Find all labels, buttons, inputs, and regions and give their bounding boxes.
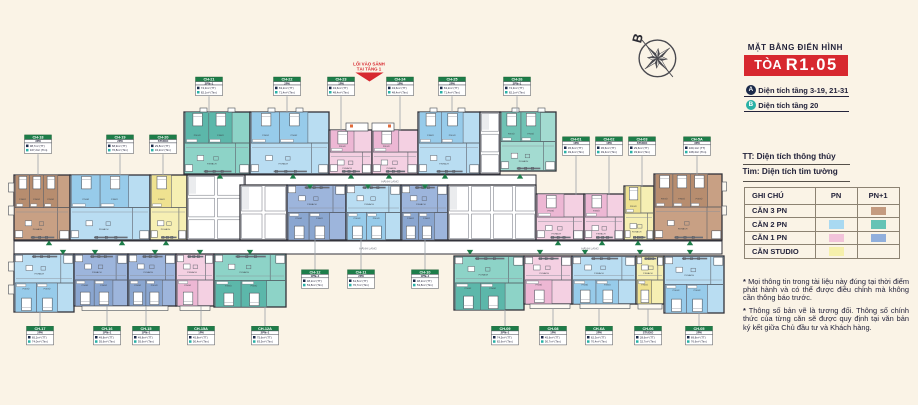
svg-text:P.NGỦ: P.NGỦ	[44, 288, 51, 291]
svg-text:3PN: 3PN	[694, 141, 699, 145]
svg-text:49,4m² (Tim): 49,4m² (Tim)	[568, 150, 584, 154]
svg-text:STUDIO: STUDIO	[643, 331, 654, 335]
svg-text:P.KHÁCH: P.KHÁCH	[207, 163, 217, 166]
svg-text:2PN: 2PN	[449, 81, 454, 85]
svg-text:2PN+1: 2PN+1	[501, 331, 510, 335]
svg-text:P.KHÁCH: P.KHÁCH	[342, 167, 352, 170]
svg-text:82,6m² (Tim): 82,6m² (Tim)	[497, 340, 513, 344]
svg-text:1PN+1: 1PN+1	[103, 331, 112, 335]
svg-text:P.NGỦ: P.NGỦ	[678, 197, 685, 200]
svg-text:P.NGỦ: P.NGỦ	[316, 217, 323, 220]
svg-text:P.NGỦ: P.NGỦ	[291, 134, 298, 137]
svg-text:50,4m² (Tim): 50,4m² (Tim)	[193, 340, 209, 344]
svg-text:P.KHÁCH: P.KHÁCH	[239, 271, 249, 274]
svg-text:P.NGỦ: P.NGỦ	[535, 284, 542, 287]
svg-text:74,0m² (Tim): 74,0m² (Tim)	[32, 340, 48, 344]
svg-text:P.NGỦ: P.NGỦ	[354, 217, 361, 220]
svg-text:P.NGỦ: P.NGỦ	[151, 284, 158, 287]
svg-text:P.NGỦ: P.NGỦ	[23, 288, 30, 291]
svg-text:71,4m² (Tim): 71,4m² (Tim)	[279, 90, 295, 94]
svg-text:P.NGỦ: P.NGỦ	[158, 198, 165, 201]
svg-text:2PN: 2PN	[37, 331, 42, 335]
svg-text:HÀNH LANG: HÀNH LANG	[381, 179, 399, 183]
svg-text:P.NGỦ: P.NGỦ	[251, 285, 258, 288]
svg-text:2PN+1: 2PN+1	[261, 331, 270, 335]
svg-text:1PN+1: 1PN+1	[142, 331, 151, 335]
svg-text:P.NGỦ: P.NGỦ	[295, 217, 302, 220]
svg-text:P.KHÁCH: P.KHÁCH	[364, 203, 374, 206]
svg-text:70,4m² (Tim): 70,4m² (Tim)	[591, 340, 607, 344]
svg-text:P.NGỦ: P.NGỦ	[373, 217, 380, 220]
svg-text:P.NGỦ: P.NGỦ	[489, 287, 496, 290]
svg-text:1PN: 1PN	[198, 331, 203, 335]
svg-text:P.NGỦ: P.NGỦ	[339, 145, 346, 148]
svg-text:P.NGỦ: P.NGỦ	[508, 133, 515, 136]
svg-text:P.NGỦ: P.NGỦ	[604, 284, 611, 287]
svg-text:P.KHÁCH: P.KHÁCH	[439, 163, 449, 166]
svg-text:P.NGỦ: P.NGỦ	[100, 284, 107, 287]
svg-text:P.NGỦ: P.NGỦ	[465, 287, 472, 290]
svg-text:1PN: 1PN	[397, 81, 402, 85]
svg-text:P.NGỦ: P.NGỦ	[593, 210, 600, 213]
svg-text:P.NGỦ: P.NGỦ	[19, 198, 26, 201]
svg-text:2PN: 2PN	[117, 139, 122, 143]
svg-text:STUDIO: STUDIO	[637, 141, 648, 145]
svg-text:P.NGỦ: P.NGỦ	[111, 198, 118, 201]
svg-text:P.KHÁCH: P.KHÁCH	[34, 273, 44, 276]
svg-text:49,4m² (Tim): 49,4m² (Tim)	[601, 150, 617, 154]
svg-text:HÀNH LANG: HÀNH LANG	[359, 246, 377, 250]
svg-text:P.KHÁCH: P.KHÁCH	[416, 203, 426, 206]
svg-text:P.KHÁCH: P.KHÁCH	[187, 271, 197, 274]
svg-text:P.NGỦ: P.NGỦ	[449, 134, 456, 137]
svg-text:P.KHÁCH: P.KHÁCH	[643, 272, 653, 275]
svg-text:TẠI TẦNG 1: TẠI TẦNG 1	[357, 67, 382, 72]
svg-text:P.KHÁCH: P.KHÁCH	[596, 233, 606, 236]
svg-text:P.KHÁCH: P.KHÁCH	[594, 272, 604, 275]
svg-text:33,9m² (Tim): 33,9m² (Tim)	[634, 150, 650, 154]
svg-text:P.NGỦ: P.NGỦ	[194, 134, 201, 137]
svg-text:P.KHÁCH: P.KHÁCH	[539, 272, 549, 275]
svg-text:1PN: 1PN	[550, 331, 555, 335]
svg-text:P.KHÁCH: P.KHÁCH	[143, 271, 153, 274]
svg-text:2PN: 2PN	[596, 331, 601, 335]
svg-text:P.NGỦ: P.NGỦ	[262, 134, 269, 137]
svg-text:P.NGỦ: P.NGỦ	[661, 197, 668, 200]
svg-text:2PN+1: 2PN+1	[513, 81, 522, 85]
svg-text:P.NGỦ: P.NGỦ	[82, 284, 89, 287]
svg-text:71,4m² (Tim): 71,4m² (Tim)	[444, 90, 460, 94]
svg-text:3PN: 3PN	[35, 139, 40, 143]
svg-text:P.KHÁCH: P.KHÁCH	[519, 160, 529, 163]
svg-text:P.NGỦ: P.NGỦ	[423, 217, 430, 220]
svg-text:STUDIO: STUDIO	[158, 139, 169, 143]
svg-text:2PN: 2PN	[358, 274, 363, 278]
svg-text:P.KHÁCH: P.KHÁCH	[479, 274, 489, 277]
svg-text:48,4m² (Tim): 48,4m² (Tim)	[392, 90, 408, 94]
svg-text:34,2m² (Tim): 34,2m² (Tim)	[155, 148, 171, 152]
svg-text:P.KHÁCH: P.KHÁCH	[684, 274, 694, 277]
svg-text:P.NGỦ: P.NGỦ	[696, 197, 703, 200]
svg-text:P.NGỦ: P.NGỦ	[47, 198, 54, 201]
svg-text:1PN+1: 1PN+1	[421, 274, 430, 278]
svg-text:1PN: 1PN	[606, 141, 611, 145]
svg-text:2PN: 2PN	[696, 331, 701, 335]
svg-text:P.KHÁCH: P.KHÁCH	[161, 228, 171, 231]
svg-text:P.KHÁCH: P.KHÁCH	[99, 228, 109, 231]
svg-text:55,6m² (Tim): 55,6m² (Tim)	[99, 340, 115, 344]
svg-text:82,1m² (Tim): 82,1m² (Tim)	[509, 90, 525, 94]
svg-text:P.NGỦ: P.NGỦ	[407, 217, 414, 220]
svg-text:P.NGỦ: P.NGỦ	[547, 210, 554, 213]
svg-text:P.NGỦ: P.NGỦ	[630, 205, 637, 208]
svg-text:55,6m² (Tim): 55,6m² (Tim)	[138, 340, 154, 344]
svg-text:P.NGỦ: P.NGỦ	[581, 284, 588, 287]
svg-text:108,4m² (Tim): 108,4m² (Tim)	[689, 150, 707, 154]
svg-text:P.NGỦ: P.NGỦ	[673, 289, 680, 292]
svg-text:P.KHÁCH: P.KHÁCH	[278, 163, 288, 166]
svg-text:83,5m² (Tim): 83,5m² (Tim)	[257, 340, 273, 344]
svg-text:P.KHÁCH: P.KHÁCH	[92, 271, 102, 274]
svg-text:P.NGỦ: P.NGỦ	[383, 145, 390, 148]
svg-text:P.NGỦ: P.NGỦ	[33, 198, 40, 201]
svg-text:P.NGỦ: P.NGỦ	[134, 284, 141, 287]
svg-text:P.NGỦ: P.NGỦ	[427, 134, 434, 137]
svg-text:P.NGỦ: P.NGỦ	[184, 284, 191, 287]
svg-text:P.KHÁCH: P.KHÁCH	[678, 228, 688, 231]
svg-text:P.KHÁCH: P.KHÁCH	[632, 231, 642, 234]
svg-text:P.NGỦ: P.NGỦ	[641, 284, 648, 287]
svg-text:2PN: 2PN	[284, 81, 289, 85]
svg-text:76,8m² (Tim): 76,8m² (Tim)	[112, 148, 128, 152]
svg-text:50,7m² (Tim): 50,7m² (Tim)	[545, 340, 561, 344]
svg-text:P.NGỦ: P.NGỦ	[527, 133, 534, 136]
svg-text:P.KHÁCH: P.KHÁCH	[33, 228, 43, 231]
svg-text:70,7m² (Tim): 70,7m² (Tim)	[353, 283, 369, 287]
svg-text:P.KHÁCH: P.KHÁCH	[551, 233, 561, 236]
svg-text:P.KHÁCH: P.KHÁCH	[307, 203, 317, 206]
svg-text:48,4m² (Tim): 48,4m² (Tim)	[333, 90, 349, 94]
svg-text:P.NGỦ: P.NGỦ	[82, 198, 89, 201]
svg-text:1PN: 1PN	[573, 141, 578, 145]
svg-text:53,8m² (Tim): 53,8m² (Tim)	[307, 283, 323, 287]
svg-text:P.NGỦ: P.NGỦ	[217, 134, 224, 137]
svg-text:2PN+1: 2PN+1	[205, 81, 214, 85]
svg-text:P.KHÁCH: P.KHÁCH	[387, 167, 397, 170]
svg-text:HÀNH LANG: HÀNH LANG	[581, 246, 599, 250]
svg-text:53,8m² (Tim): 53,8m² (Tim)	[417, 283, 433, 287]
svg-text:P.NGỦ: P.NGỦ	[694, 289, 701, 292]
svg-text:1PN: 1PN	[338, 81, 343, 85]
svg-text:76,6m² (Tim): 76,6m² (Tim)	[691, 340, 707, 344]
svg-text:107,2m² (Tim): 107,2m² (Tim)	[30, 148, 48, 152]
svg-text:P.NGỦ: P.NGỦ	[225, 285, 232, 288]
svg-text:82,1m² (Tim): 82,1m² (Tim)	[201, 90, 217, 94]
svg-text:1PN+1: 1PN+1	[311, 274, 320, 278]
svg-text:32,7m² (Tim): 32,7m² (Tim)	[640, 340, 656, 344]
